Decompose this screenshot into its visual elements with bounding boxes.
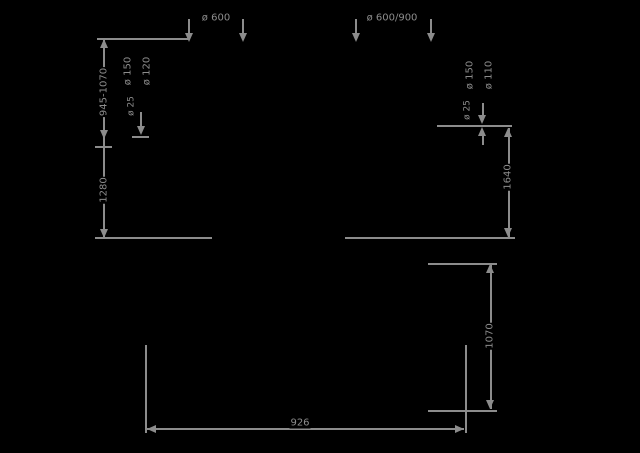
left-dim-arrow-top-icon [100,39,108,48]
right-top-bracket-tick-right [430,19,432,34]
bottom-right-bottom-reference-line [428,410,497,412]
left-top-bracket-tick-right [242,19,244,34]
bottom-height-arrow-top-icon [486,264,494,273]
right-top-bracket-arrow-left-icon [352,33,360,42]
right-small-diameter-label: ø 25 [463,99,474,121]
right-baseline [345,237,515,239]
left-baseline [95,237,212,239]
left-small-diameter-label: ø 25 [127,95,138,117]
bottom-width-arrow-left-icon [147,425,156,433]
bottom-extension-line-right [465,345,467,433]
left-top-bracket-arrow-right-icon [239,33,247,42]
bottom-width-label: 926 [289,418,310,429]
left-top-width-label: ø 600 [201,13,231,24]
right-dim-arrow-top-icon [504,128,512,137]
right-duct-diameter-secondary-label: ø 110 [484,60,495,90]
left-top-bracket-tick-left [188,19,190,34]
right-reference-line [437,125,512,127]
left-dim-mid-tick [95,146,112,148]
left-duct-diameter-secondary-label: ø 120 [142,56,153,86]
left-dim-arrow-mid-icon [100,130,108,139]
right-under-line-stem [482,135,484,145]
left-small-callout-tick [132,136,149,138]
right-top-bracket-tick-left [355,19,357,34]
left-chimney-height-label: 945-1070 [99,67,110,117]
right-small-callout-arrow-icon [478,115,486,124]
right-top-width-label: ø 600/900 [366,13,419,24]
left-reference-line [97,38,189,40]
left-small-callout-arrow-icon [137,126,145,135]
right-height-label: 1640 [503,163,514,190]
left-total-height-label: 1280 [99,176,110,203]
bottom-height-arrow-bottom-icon [486,400,494,409]
bottom-width-arrow-right-icon [455,425,464,433]
right-top-bracket-arrow-right-icon [427,33,435,42]
left-duct-diameter-primary-label: ø 150 [123,56,134,86]
right-duct-diameter-primary-label: ø 150 [465,60,476,90]
bottom-height-label: 1070 [485,322,496,349]
bottom-extension-line-left [145,345,147,433]
installation-dimension-diagram: ø 600 945-1070 1280 ø 150 ø 120 ø 25 ø 6… [0,0,640,453]
right-dim-arrow-bottom-icon [504,228,512,237]
